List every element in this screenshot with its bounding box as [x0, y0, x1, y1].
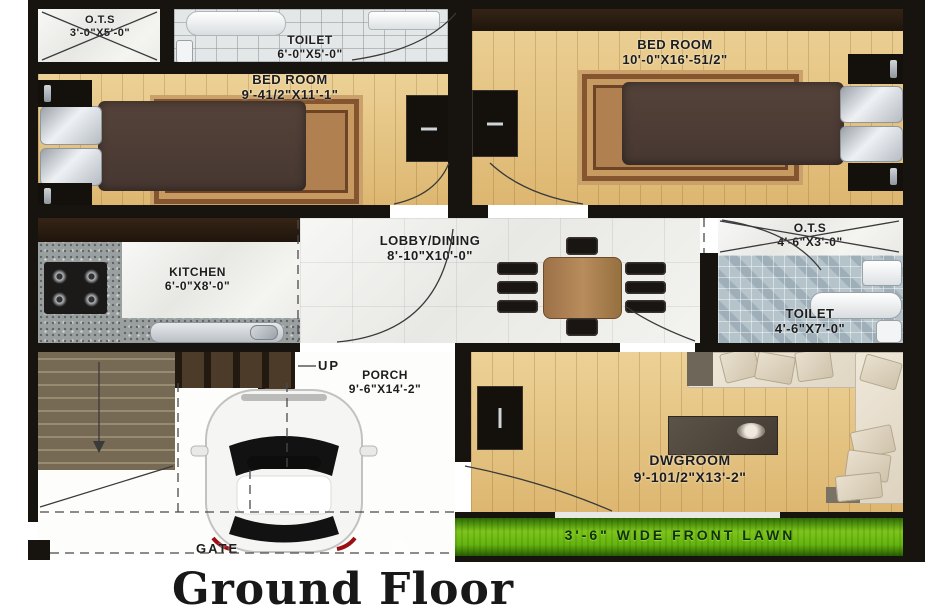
- wall-lower-b: [455, 343, 620, 352]
- page-title: Ground Floor: [172, 564, 514, 615]
- dining-table: [543, 257, 622, 319]
- wall-right: [903, 0, 925, 562]
- car-top-view: [183, 386, 385, 558]
- dining-chair: [497, 262, 538, 275]
- toilet-right-washbasin: [862, 260, 902, 286]
- kitchen-sink: [150, 322, 284, 343]
- kitchen-top-counter: [38, 218, 300, 242]
- pillow: [840, 126, 903, 163]
- dining-chair: [625, 262, 666, 275]
- bedroom-right-pillows: [840, 86, 903, 162]
- ots-right-label: O.T.S 4'-6"X3'-0": [735, 221, 885, 249]
- dining-chair: [625, 300, 666, 313]
- dwgroom-sofa-corner: [687, 352, 713, 386]
- toilet-right-label: TOILET 4'-6"X7'-0": [735, 306, 885, 337]
- gate-text: GATE: [196, 541, 239, 556]
- dining-chair: [497, 300, 538, 313]
- kitchen-hob: [44, 262, 107, 314]
- pillow: [40, 106, 102, 145]
- room-dims: 9'-41/2"X11'-1": [242, 87, 339, 102]
- room-name: O.T.S: [794, 221, 827, 235]
- pillow: [40, 148, 102, 187]
- staircase: [38, 345, 175, 470]
- lobby-label: LOBBY/DINING 8'-10"X10'-0": [340, 233, 520, 264]
- room-name: KITCHEN: [169, 265, 226, 279]
- copyright-watermark: ©: [393, 536, 406, 556]
- lawn-label: 3'-6" WIDE FRONT LAWN: [505, 527, 855, 544]
- room-name: TOILET: [786, 306, 835, 321]
- bedroom-left-nightstand-top: [38, 80, 92, 107]
- room-name: BED ROOM: [252, 72, 328, 87]
- room-dims: 8'-10"X10'-0": [387, 248, 473, 263]
- dining-chair: [497, 281, 538, 294]
- bedroom-right-bed: [622, 82, 844, 165]
- room-dims: 6'-0"X8'-0": [165, 279, 230, 293]
- bedroom-right-label: BED ROOM 10'-0"X16'-51/2": [580, 37, 770, 68]
- toilet-top-label: TOILET 6'-0"X5'-0": [230, 33, 390, 61]
- ground-floor-plan: O.T.S 3'-0"X5'-0" TOILET 6'-0"X5'-0" BED…: [0, 0, 945, 615]
- dwgroom-tv-unit: [477, 386, 523, 450]
- dining-chair: [566, 237, 598, 255]
- bedroom-right-wardrobe: [472, 90, 518, 157]
- under-stairs-floor: [38, 470, 173, 556]
- toilet-top-washbasin: [368, 11, 440, 30]
- entry-step: [555, 512, 780, 518]
- lawn-text: 3'-6" WIDE FRONT LAWN: [565, 527, 796, 544]
- room-name: DWGROOM: [649, 452, 730, 469]
- gate-label: GATE: [196, 541, 239, 556]
- bedroom-right-top-shelf: [472, 9, 903, 31]
- room-dims: 9'-101/2"X13'-2": [634, 469, 747, 486]
- wall-left: [28, 0, 38, 522]
- wall-mid-a: [28, 205, 390, 218]
- room-dims: 9'-6"X14'-2": [349, 382, 421, 396]
- bedroom-left-label: BED ROOM 9'-41/2"X11'-1": [200, 72, 380, 103]
- wall-mid-c: [588, 205, 903, 218]
- wall-left-bottom-nub: [28, 540, 50, 560]
- bedroom-left-wardrobe: [406, 95, 452, 162]
- pillow: [840, 86, 903, 123]
- ots-top-label: O.T.S 3'-0"X5'-0": [40, 14, 160, 40]
- bedroom-left-pillows: [40, 106, 102, 186]
- room-dims: 4'-6"X3'-0": [777, 235, 842, 249]
- room-dims: 10'-0"X16'-51/2": [622, 52, 727, 67]
- dwgroom-coffee-table: [668, 416, 778, 455]
- sofa-cushion: [794, 348, 834, 383]
- wall-center-passage: [448, 9, 472, 205]
- porch-label: PORCH 9'-6"X14'-2": [310, 368, 460, 396]
- dwgroom-label: DWGROOM 9'-101/2"X13'-2": [590, 452, 790, 485]
- wall-lobby-toiletright: [700, 253, 718, 343]
- bedroom-left-bed: [98, 101, 306, 191]
- sofa-cushion: [835, 472, 883, 503]
- wall-bottom-lawn: [455, 556, 925, 562]
- bedroom-right-nightstand-top: [848, 54, 903, 84]
- room-name: O.T.S: [85, 14, 115, 27]
- wall-lower-c: [695, 343, 903, 352]
- kitchen-label: KITCHEN 6'-0"X8'-0": [120, 265, 275, 293]
- dining-chair: [566, 318, 598, 336]
- toilet-top-wc: [176, 40, 193, 63]
- room-name: BED ROOM: [637, 37, 713, 52]
- room-dims: 6'-0"X5'-0": [277, 47, 342, 61]
- room-dims: 4'-6"X7'-0": [775, 321, 845, 336]
- room-name: LOBBY/DINING: [380, 233, 481, 248]
- bedroom-right-nightstand-bottom: [848, 163, 903, 191]
- dining-chair: [625, 281, 666, 294]
- wall-mid-b: [448, 205, 488, 218]
- room-name: PORCH: [362, 368, 408, 382]
- room-name: TOILET: [287, 33, 332, 47]
- wall-lower-a: [28, 343, 300, 352]
- room-dims: 3'-0"X5'-0": [70, 27, 130, 40]
- wall-ots-toilet-divider: [160, 0, 174, 64]
